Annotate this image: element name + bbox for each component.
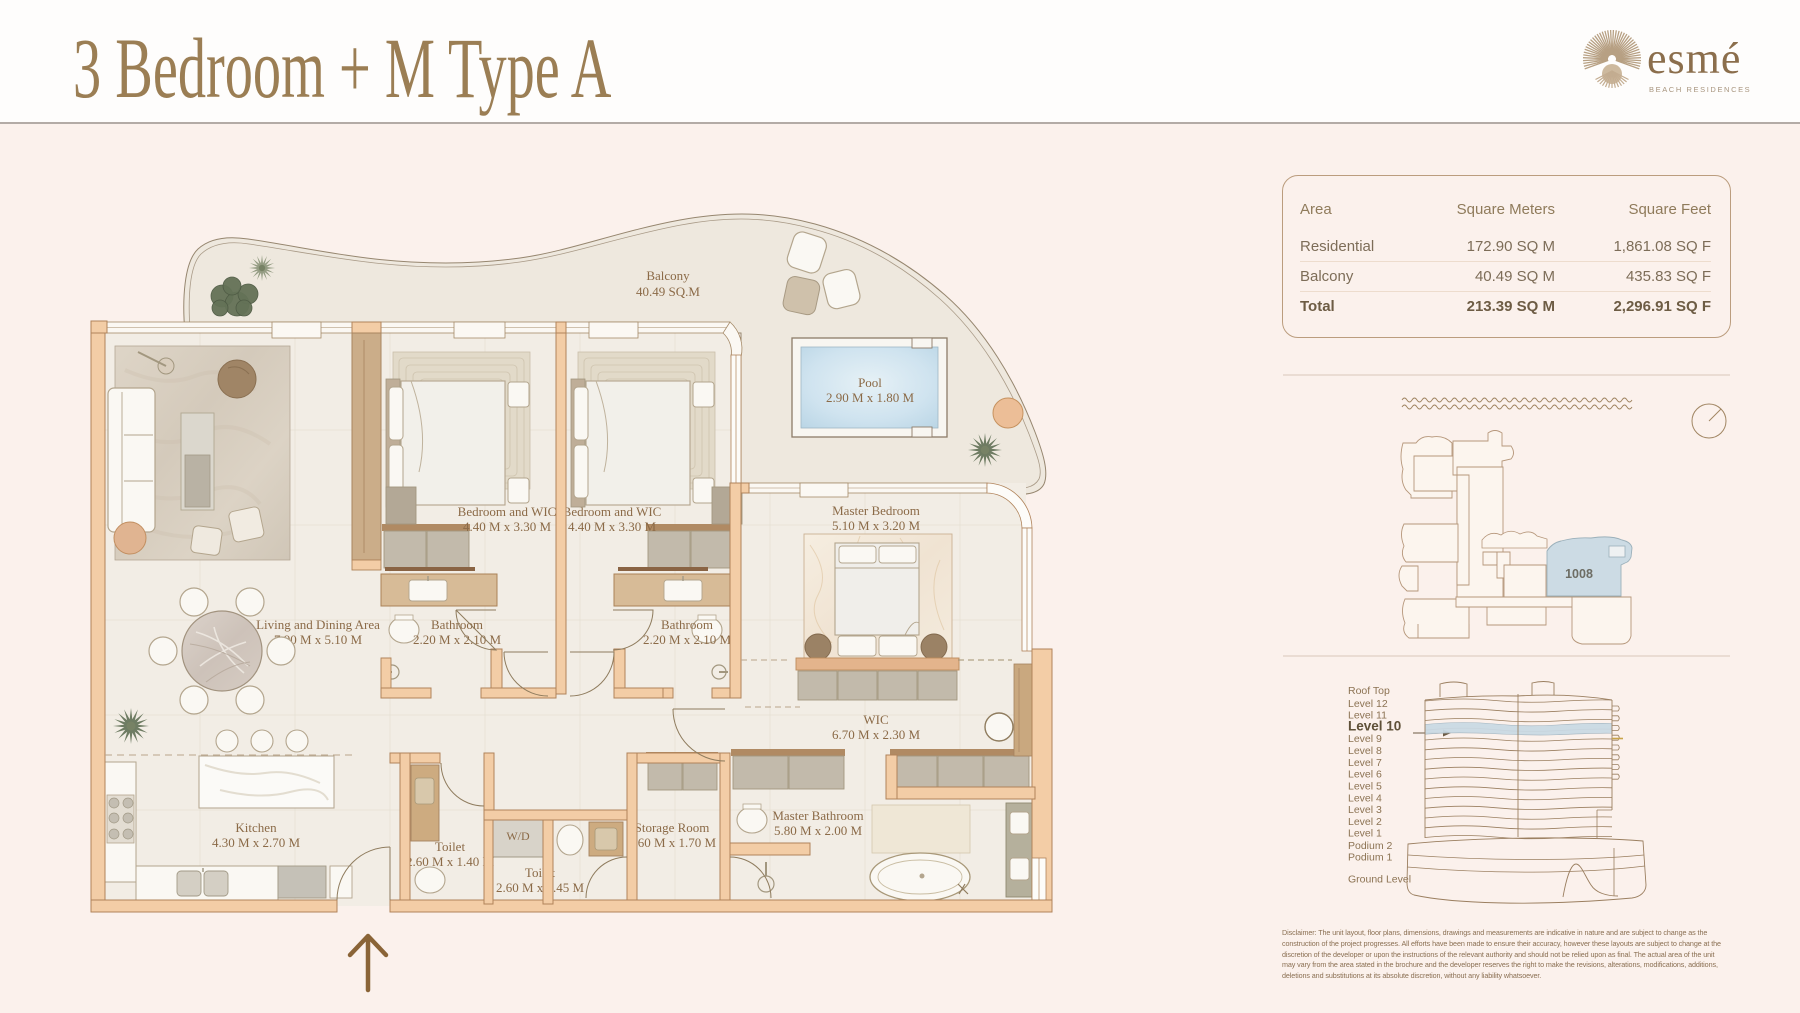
svg-text:Level 7: Level 7 xyxy=(1348,757,1382,769)
svg-text:Level 12: Level 12 xyxy=(1348,698,1388,710)
svg-text:2.60 M x 1.40 M: 2.60 M x 1.40 M xyxy=(406,854,495,869)
svg-text:Podium 1: Podium 1 xyxy=(1348,852,1393,864)
svg-text:5.10 M x 3.20 M: 5.10 M x 3.20 M xyxy=(832,518,921,533)
svg-text:Level 3: Level 3 xyxy=(1348,804,1382,816)
svg-text:2.60 M x 1.45 M: 2.60 M x 1.45 M xyxy=(496,880,585,895)
svg-text:BEACH RESIDENCES: BEACH RESIDENCES xyxy=(1649,85,1751,94)
svg-text:Bathroom: Bathroom xyxy=(661,617,713,632)
svg-text:Level 1: Level 1 xyxy=(1348,828,1382,840)
svg-text:Level 10: Level 10 xyxy=(1348,719,1401,734)
svg-text:Level 2: Level 2 xyxy=(1348,816,1382,828)
svg-text:Bedroom and WIC: Bedroom and WIC xyxy=(458,504,557,519)
svg-text:Kitchen: Kitchen xyxy=(235,820,277,835)
svg-text:Level 6: Level 6 xyxy=(1348,769,1382,781)
svg-text:Toilet: Toilet xyxy=(435,839,466,854)
svg-text:Master Bathroom: Master Bathroom xyxy=(772,808,863,823)
svg-text:Pool: Pool xyxy=(858,375,882,390)
svg-text:2.20 M x 2.10 M: 2.20 M x 2.10 M xyxy=(413,632,502,647)
svg-text:4.40 M x 3.30 M: 4.40 M x 3.30 M xyxy=(463,519,552,534)
svg-text:5.80 M x 2.00 M: 5.80 M x 2.00 M xyxy=(774,823,863,838)
svg-text:Ground Level: Ground Level xyxy=(1348,874,1411,886)
svg-text:Roof Top: Roof Top xyxy=(1348,685,1390,697)
svg-text:Bedroom and WIC: Bedroom and WIC xyxy=(563,504,662,519)
svg-text:Balcony: Balcony xyxy=(646,268,690,283)
svg-text:4.40 M x 3.30 M: 4.40 M x 3.30 M xyxy=(568,519,657,534)
svg-text:6.70 M x 2.30 M: 6.70 M x 2.30 M xyxy=(832,727,921,742)
svg-text:Master Bedroom: Master Bedroom xyxy=(832,503,920,518)
svg-text:1008: 1008 xyxy=(1565,567,1593,581)
svg-text:Level 8: Level 8 xyxy=(1348,745,1382,757)
svg-text:Level 9: Level 9 xyxy=(1348,733,1382,745)
svg-text:4.30 M x 2.70 M: 4.30 M x 2.70 M xyxy=(212,835,301,850)
svg-text:WIC: WIC xyxy=(863,712,888,727)
svg-text:2.60 M x 1.70 M: 2.60 M x 1.70 M xyxy=(628,835,717,850)
svg-text:esmé: esmé xyxy=(1647,34,1741,83)
svg-text:Living and Dining Area: Living and Dining Area xyxy=(256,617,380,632)
svg-text:W/D: W/D xyxy=(506,829,530,843)
svg-text:Level 5: Level 5 xyxy=(1348,781,1382,793)
svg-text:40.49 SQ.M: 40.49 SQ.M xyxy=(636,284,700,299)
svg-text:Level 4: Level 4 xyxy=(1348,793,1382,805)
svg-text:Podium 2: Podium 2 xyxy=(1348,840,1393,852)
svg-text:Storage Room: Storage Room xyxy=(635,820,710,835)
svg-text:2.90 M x 1.80 M: 2.90 M x 1.80 M xyxy=(826,390,915,405)
svg-text:2.20 M x 2.10 M: 2.20 M x 2.10 M xyxy=(643,632,732,647)
